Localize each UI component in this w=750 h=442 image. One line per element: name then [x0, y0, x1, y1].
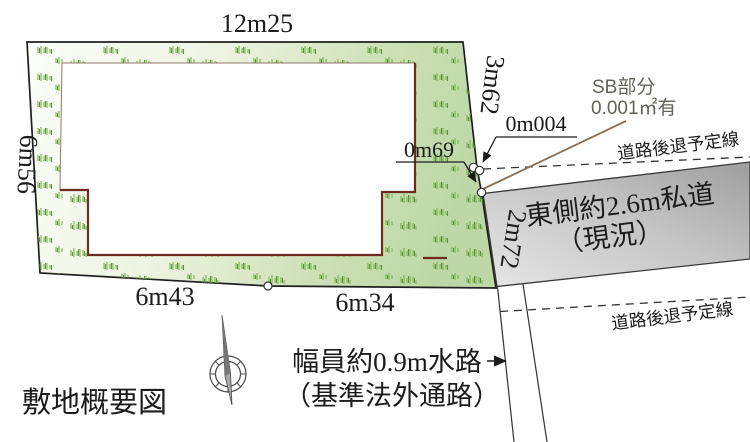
dim-sliver-arrow [483, 137, 496, 162]
site-plan-diagram: 12m25 6m56 3m62 0m004 0m69 2m72 6m43 6m3… [0, 0, 750, 442]
dim-bottom-left-label: 6m43 [135, 282, 194, 311]
sb-note-line1: SB部分 [592, 76, 655, 98]
sb-note-line2: 0.001㎡有 [591, 96, 677, 119]
dim-right-mid-label: 0m69 [404, 137, 454, 162]
dim-bottom-right-label: 6m34 [335, 288, 394, 317]
survey-point-icon [477, 188, 485, 196]
dim-sliver-label: 0m004 [505, 111, 566, 136]
dim-top-label: 12m25 [221, 9, 293, 38]
survey-point-icon [475, 166, 483, 174]
site-plan-page: 12m25 6m56 3m62 0m004 0m69 2m72 6m43 6m3… [0, 0, 750, 442]
waterway-label-line2: （基準法外通路） [284, 381, 500, 411]
survey-point-icon [264, 282, 272, 290]
compass-icon [210, 315, 246, 405]
waterway-left-line [498, 287, 515, 442]
building-footprint [60, 63, 415, 255]
waterway-right-line [523, 284, 547, 442]
waterway-label-line1: 幅員約0.9m水路 [292, 347, 482, 377]
dim-left-label: 6m56 [11, 134, 43, 195]
dim-right-upper-label: 3m62 [474, 54, 510, 116]
page-title: 敷地概要図 [22, 386, 167, 419]
